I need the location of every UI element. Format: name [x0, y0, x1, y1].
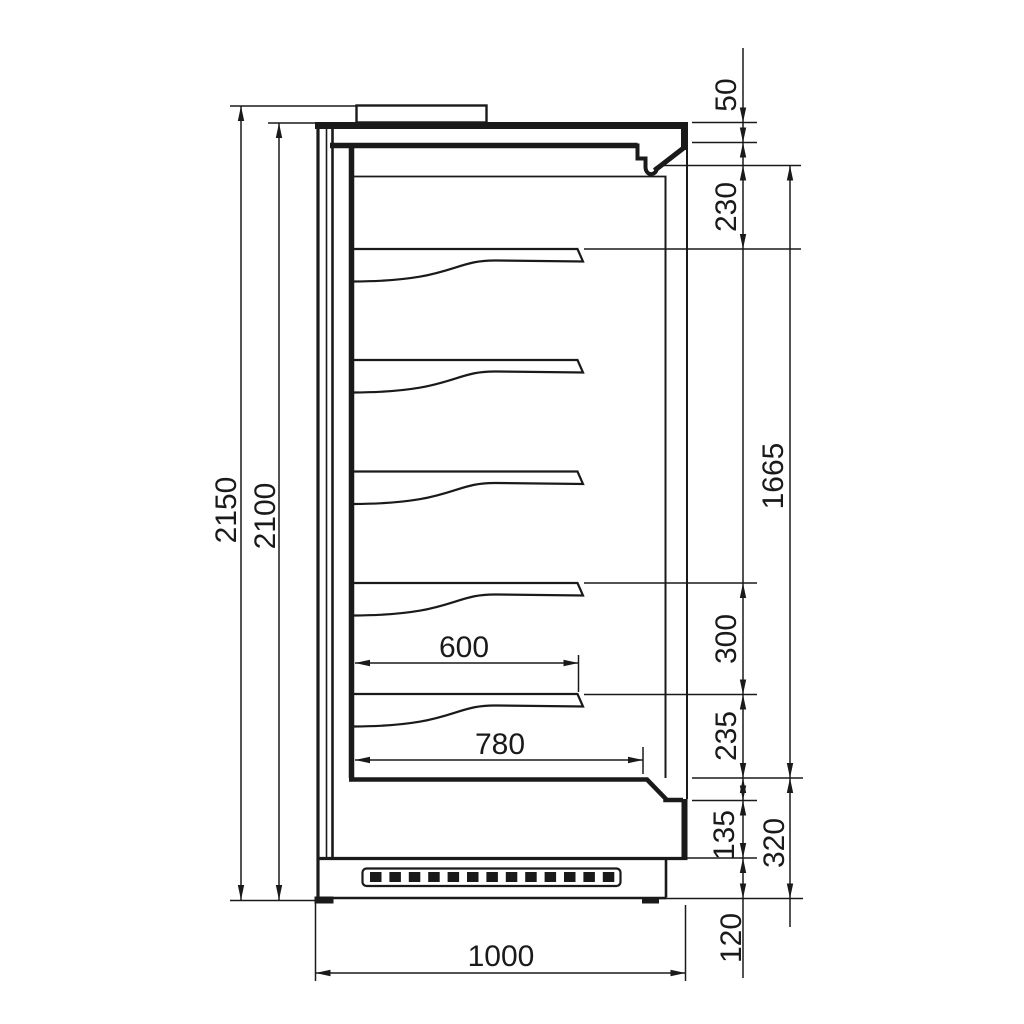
dim-label-shelf-depth: 600	[439, 631, 489, 664]
dim-label-base-section: 320	[758, 818, 791, 868]
dim-label-top-spacer: 50	[710, 78, 743, 111]
shelf-3	[354, 472, 583, 505]
dim-label-cabinet-height: 2100	[249, 483, 282, 550]
dim-label-bumper: 135	[708, 810, 741, 860]
ventilation-grille	[363, 869, 621, 887]
dim-label-shelf-pitch: 300	[710, 614, 743, 664]
grille-slats	[370, 872, 614, 882]
dim-label-plinth: 120	[715, 913, 748, 963]
cabinet-section-drawing: 2150 2100 50 230 1665 300 235 135 320 12…	[0, 0, 1024, 1024]
dim-label-display-opening: 1665	[757, 443, 790, 510]
drawing-canvas: 2150 2100 50 230 1665 300 235 135 320 12…	[0, 0, 1024, 1024]
dim-label-overall-depth: 1000	[468, 940, 535, 973]
cabinet-structure	[315, 106, 689, 904]
dim-label-deck-depth: 780	[475, 728, 525, 761]
shelf-5	[354, 694, 583, 727]
deck	[349, 780, 683, 801]
dimension-annotations: 2150 2100 50 230 1665 300 235 135 320 12…	[210, 48, 803, 981]
dim-label-overall-height: 2150	[210, 477, 243, 544]
shelf-1	[354, 249, 583, 282]
dim-label-shelf-to-deck: 235	[710, 711, 743, 761]
shelf-2	[354, 360, 583, 393]
shelf-4	[354, 583, 583, 616]
dimension-labels: 2150 2100 50 230 1665 300 235 135 320 12…	[210, 78, 791, 973]
canopy-trim-diagonal	[655, 147, 686, 171]
canopy-drip-trim	[638, 144, 657, 175]
dim-label-canopy: 230	[710, 182, 743, 232]
top-spacer-block	[357, 106, 487, 123]
